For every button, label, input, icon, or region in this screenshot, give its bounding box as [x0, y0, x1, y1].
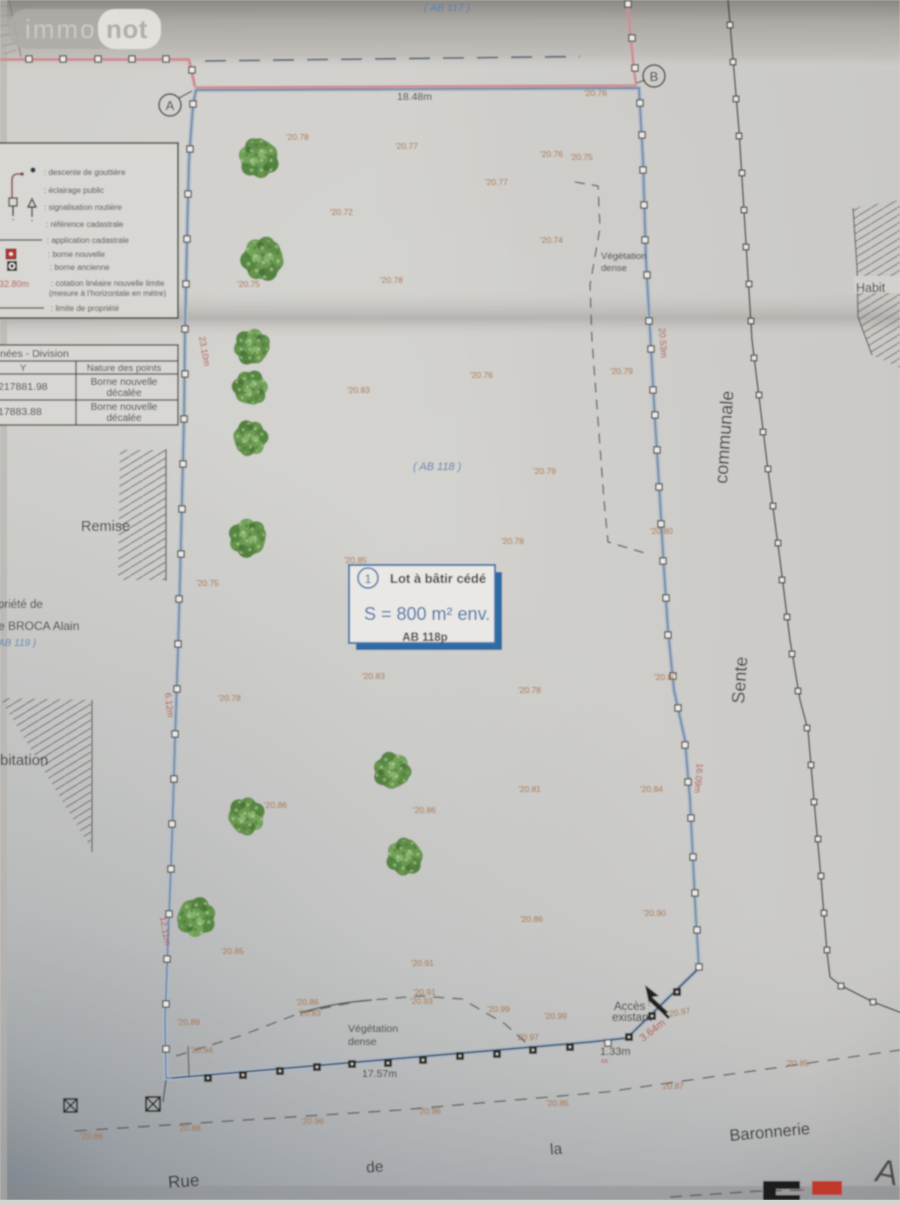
svg-text:'20.80: '20.80 — [654, 672, 677, 682]
svg-text:'20.93: '20.93 — [410, 996, 433, 1006]
svg-text:'20.89: '20.89 — [177, 1017, 200, 1027]
svg-text:existant: existant — [612, 1012, 652, 1024]
svg-text:1.33m: 1.33m — [600, 1046, 631, 1058]
svg-text:AB 118p: AB 118p — [402, 632, 447, 644]
svg-text:la: la — [550, 1141, 564, 1159]
svg-text:'20.81: '20.81 — [518, 784, 541, 794]
svg-text:xx: xx — [601, 1058, 609, 1065]
svg-text:'20.90: '20.90 — [643, 908, 666, 918]
svg-text:: limite de propriété: : limite de propriété — [51, 304, 120, 313]
svg-text:'20.77: '20.77 — [485, 177, 508, 187]
svg-text:'20.78: '20.78 — [518, 685, 541, 695]
svg-text:: signalisation routière: : signalisation routière — [44, 203, 122, 212]
svg-text:'20.78: '20.78 — [218, 693, 241, 703]
svg-text:17.57m: 17.57m — [362, 1068, 397, 1080]
svg-text:217881.98: 217881.98 — [0, 381, 48, 393]
svg-text:'20.76: '20.76 — [540, 149, 563, 159]
svg-text:'20.79: '20.79 — [533, 466, 556, 476]
svg-text:dense: dense — [348, 1036, 377, 1048]
svg-text:(mesure à l'horizontale en mét: (mesure à l'horizontale en métre) — [49, 289, 166, 298]
svg-text:Borne nouvelle: Borne nouvelle — [91, 377, 158, 388]
svg-text:: référence cadastrale: : référence cadastrale — [46, 220, 124, 229]
svg-text:immo: immo — [25, 14, 97, 44]
svg-text:'20.79: '20.79 — [610, 366, 633, 376]
svg-text:: cotation linéaire nouvelle l: : cotation linéaire nouvelle limite — [51, 279, 165, 288]
svg-text:priété de: priété de — [0, 599, 43, 611]
svg-text:'20.97: '20.97 — [516, 1032, 539, 1042]
svg-text:Borne nouvelle: Borne nouvelle — [91, 402, 158, 413]
svg-text:'20.86: '20.86 — [520, 914, 543, 924]
svg-text:Nature des points: Nature des points — [87, 363, 162, 374]
svg-text:AB 119 ): AB 119 ) — [0, 638, 36, 649]
svg-text:décalée: décalée — [106, 388, 141, 399]
svg-text:e BROCA Alain: e BROCA Alain — [0, 619, 79, 633]
svg-text:'20.99: '20.99 — [544, 1011, 567, 1021]
svg-text:'20.99: '20.99 — [487, 1004, 510, 1014]
svg-text:de: de — [366, 1158, 384, 1176]
svg-text:Végétation: Végétation — [601, 251, 646, 262]
svg-text:'20.80: '20.80 — [650, 526, 673, 536]
svg-text:: borne ancienne: : borne ancienne — [50, 263, 110, 272]
svg-text:'20.87: '20.87 — [661, 1081, 684, 1091]
svg-text:'20.96: '20.96 — [301, 1116, 324, 1126]
svg-text:décalée: décalée — [106, 413, 141, 424]
svg-text:'20.86: '20.86 — [80, 1131, 103, 1141]
svg-text:'20.83: '20.83 — [347, 385, 370, 395]
svg-text:A: A — [166, 98, 175, 113]
svg-text:Lot à bâtir cédé: Lot à bâtir cédé — [390, 571, 486, 586]
svg-text:( AB 117 ): ( AB 117 ) — [424, 2, 470, 14]
svg-text:: descente de gouttière: : descente de gouttière — [44, 168, 126, 177]
svg-text:'20.88: '20.88 — [178, 1123, 201, 1133]
svg-text:'20.77: '20.77 — [395, 141, 418, 151]
svg-text:( AB 118 ): ( AB 118 ) — [413, 461, 462, 473]
svg-text:: éclairage public: : éclairage public — [44, 186, 104, 195]
svg-text:nées - Division: nées - Division — [0, 348, 69, 360]
svg-text:Végétation: Végétation — [348, 1023, 398, 1035]
svg-text:'20.75: '20.75 — [237, 279, 260, 289]
svg-text:'20.85: '20.85 — [221, 946, 244, 956]
svg-text:'20.94: '20.94 — [190, 1045, 213, 1055]
svg-text:Remise: Remise — [81, 519, 130, 535]
svg-text:'20.78: '20.78 — [380, 275, 403, 285]
svg-text:'20.78: '20.78 — [286, 132, 309, 142]
svg-text:'20.85: '20.85 — [786, 1058, 809, 1068]
svg-text:1: 1 — [365, 572, 372, 586]
svg-text:'20.83: '20.83 — [298, 1008, 321, 1018]
svg-text:'20.86: '20.86 — [264, 800, 287, 810]
svg-text:32.80m: 32.80m — [0, 279, 29, 289]
svg-text:'20.75: '20.75 — [196, 578, 219, 588]
svg-text:o.: o. — [801, 1187, 806, 1193]
svg-text:: application cadastrale: : application cadastrale — [47, 236, 129, 245]
svg-text:17883.88: 17883.88 — [0, 406, 42, 418]
svg-text:'20.72: '20.72 — [330, 207, 353, 217]
svg-text:20.53m: 20.53m — [657, 327, 669, 358]
svg-text:'20.84: '20.84 — [640, 784, 663, 794]
svg-text:Sente: Sente — [728, 656, 751, 704]
svg-text:'20.96: '20.96 — [418, 1106, 441, 1116]
svg-text:'20.76: '20.76 — [470, 370, 493, 380]
svg-text:: borne nouvelle: : borne nouvelle — [48, 250, 105, 259]
svg-text:'20.85: '20.85 — [344, 555, 367, 565]
svg-text:Habit: Habit — [856, 281, 886, 295]
svg-text:18.48m: 18.48m — [397, 91, 432, 103]
svg-text:'20.75: '20.75 — [570, 152, 593, 162]
svg-text:'20.76: '20.76 — [584, 88, 607, 98]
svg-text:'20.86: '20.86 — [413, 805, 436, 815]
svg-text:'20.86: '20.86 — [296, 997, 319, 1007]
svg-text:S = 800 m² env.: S = 800 m² env. — [364, 604, 490, 624]
svg-text:Rue: Rue — [167, 1171, 199, 1192]
svg-text:'20.74: '20.74 — [540, 235, 563, 245]
svg-text:bitation: bitation — [0, 752, 48, 769]
svg-text:'20.85: '20.85 — [546, 1098, 569, 1108]
svg-text:B: B — [650, 69, 659, 84]
svg-text:'20.91: '20.91 — [411, 958, 434, 968]
svg-text:'20.83: '20.83 — [362, 671, 385, 681]
svg-text:Y: Y — [20, 363, 27, 374]
svg-text:dense: dense — [601, 263, 627, 274]
svg-text:'20.78: '20.78 — [501, 536, 524, 546]
svg-text:not: not — [106, 14, 148, 44]
